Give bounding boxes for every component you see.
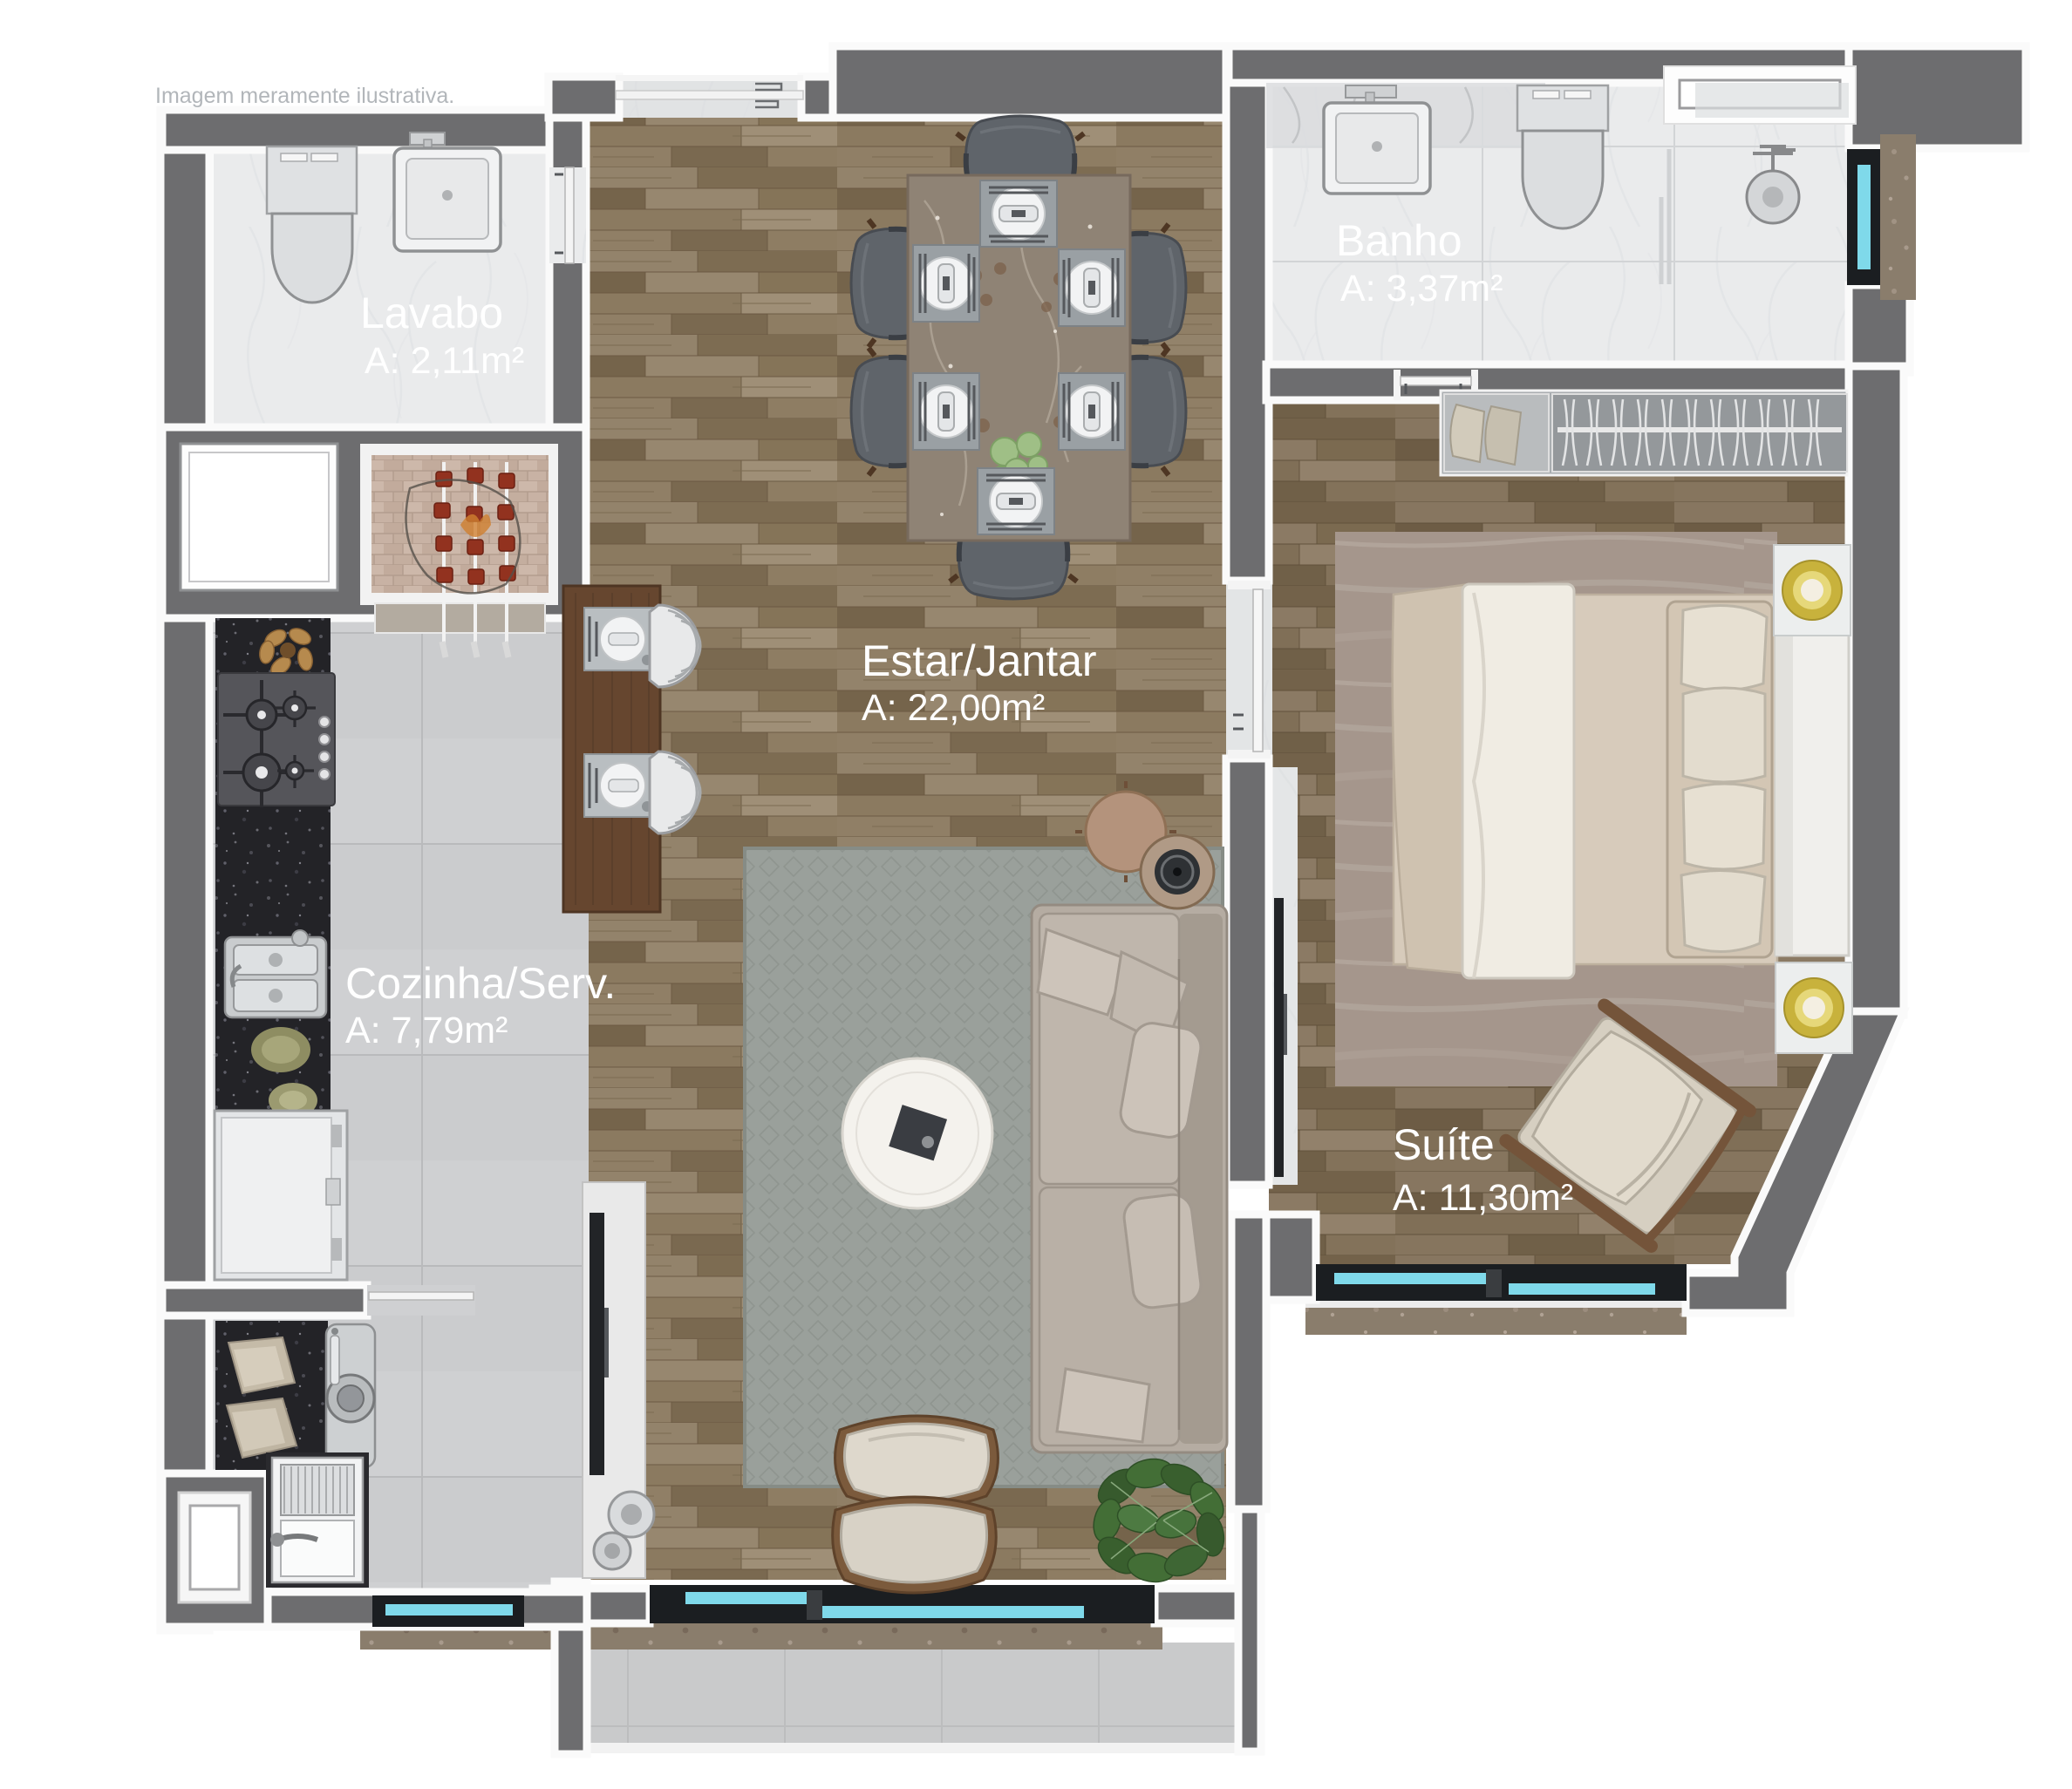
svg-text:Lavabo: Lavabo bbox=[360, 289, 503, 337]
svg-text:Cozinha/Serv.: Cozinha/Serv. bbox=[345, 959, 616, 1008]
svg-text:A: 3,37m²: A: 3,37m² bbox=[1340, 268, 1503, 310]
svg-text:A: 2,11m²: A: 2,11m² bbox=[365, 340, 524, 382]
svg-text:Suíte: Suíte bbox=[1393, 1120, 1495, 1169]
svg-text:Imagem meramente ilustrativa.: Imagem meramente ilustrativa. bbox=[155, 84, 454, 108]
svg-text:Estar/Jantar: Estar/Jantar bbox=[862, 636, 1097, 685]
svg-text:A: 7,79m²: A: 7,79m² bbox=[345, 1010, 508, 1051]
svg-text:A: 11,30m²: A: 11,30m² bbox=[1393, 1177, 1573, 1219]
svg-text:Banho: Banho bbox=[1336, 216, 1462, 265]
svg-text:A: 22,00m²: A: 22,00m² bbox=[862, 687, 1045, 729]
